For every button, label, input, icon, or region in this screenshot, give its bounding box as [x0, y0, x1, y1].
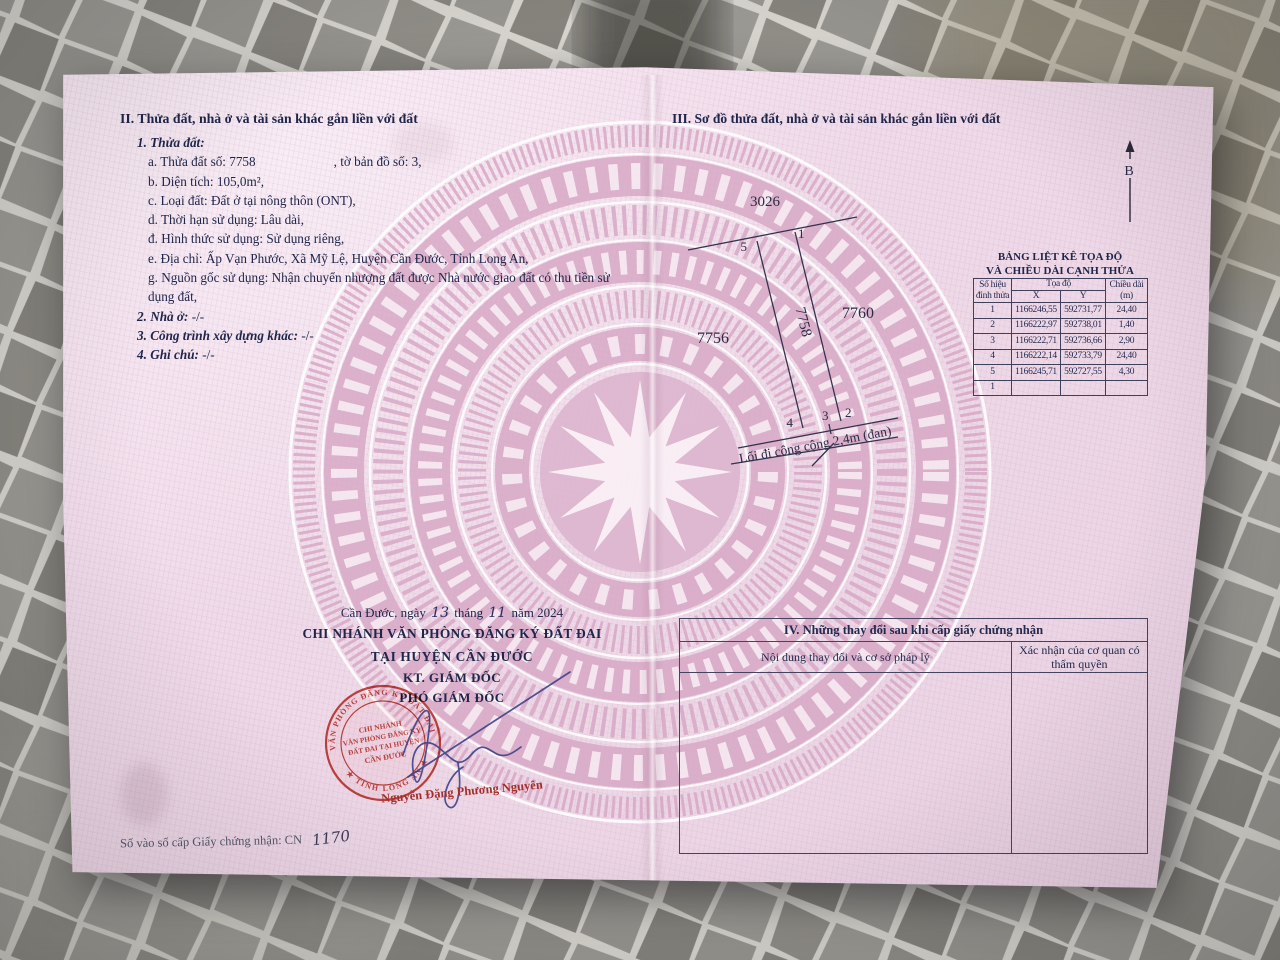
coord-table-title: BẢNG LIỆT KÊ TỌA ĐỘ VÀ CHIỀU DÀI CẠNH TH… [950, 251, 1170, 278]
certificate-content: II. Thửa đất, nhà ở và tài sản khác gắn … [63, 75, 1213, 885]
parcel-3026-label: 3026 [750, 194, 781, 210]
section3-heading: III. Sơ đồ thửa đất, nhà ở và tài sản kh… [672, 111, 1000, 127]
table-row: 1 [974, 380, 1148, 396]
section2-heading: II. Thửa đất, nhà ở và tài sản khác gắn … [120, 111, 418, 127]
table-row: 21166222,97592738,011,40 [974, 318, 1148, 334]
col-y-header: Y [1061, 291, 1106, 303]
issue-date-line: Cần Đước, ngày 13 tháng 11 năm 2024 [250, 603, 654, 623]
vertex-1-label: 1 [798, 226, 805, 241]
registry-label: Số vào sổ cấp Giấy chứng nhận: CN [120, 833, 302, 851]
section4-col-content: Nội dung thay đổi và cơ sở pháp lý [680, 642, 1012, 673]
item-cong-trinh: 3. Công trình xây dựng khác: -/- [137, 326, 717, 345]
certificate-sheet-wrapper: II. Thửa đất, nhà ở và tài sản khác gắn … [0, 0, 1280, 960]
col-x-header: X [1012, 291, 1061, 303]
col-vertex-header: Số hiệu đỉnh thửa [974, 279, 1012, 303]
section4-table: IV. Những thay đổi sau khi cấp giấy chứn… [679, 618, 1148, 854]
section4-body-left [680, 673, 1012, 854]
section4-body-right [1011, 673, 1147, 854]
road-label-pointer [812, 443, 834, 466]
registry-number-line: Số vào sổ cấp Giấy chứng nhận: CN 1170 [120, 829, 351, 853]
item-ghi-chu: 4. Ghi chú: -/- [137, 345, 717, 364]
table-row: 41166222,14592733,7924,40 [974, 349, 1148, 365]
registry-number-handwritten: 1170 [311, 827, 351, 850]
certificate-sheet: II. Thửa đất, nhà ở và tài sản khác gắn … [55, 64, 1217, 892]
item-thua-dat: 1. Thửa đất: [137, 133, 717, 152]
vertex-2-label: 2 [845, 405, 852, 420]
paper-stain [121, 763, 167, 825]
item-loai-dat: c. Loại đất: Đất ở tại nông thôn (ONT), [137, 191, 717, 210]
item-thoi-han: d. Thời hạn sử dụng: Lâu dài, [137, 210, 717, 229]
photo-of-land-certificate: II. Thửa đất, nhà ở và tài sản khác gắn … [0, 0, 1280, 960]
table-row: 51166245,71592727,554,30 [974, 365, 1148, 381]
vertex-5-label: 5 [741, 239, 748, 254]
section2-body: 1. Thửa đất: a. Thửa đất số: 7758, tờ bả… [137, 133, 717, 365]
road-label: Lối đi công cộng 2,4m (đan) [738, 423, 893, 466]
coord-table: Số hiệu đỉnh thửa Tọa độ Chiều dài (m) X… [973, 278, 1148, 396]
item-dia-chi: e. Địa chỉ: Ấp Vạn Phước, Xã Mỹ Lệ, Huyệ… [137, 249, 717, 268]
table-row: 11166246,55592731,7724,40 [974, 303, 1148, 319]
vertex-4-label: 4 [787, 415, 794, 430]
section4-col-confirm: Xác nhận của cơ quan có thẩm quyền [1011, 642, 1147, 673]
item-hinh-thuc: đ. Hình thức sử dụng: Sử dụng riêng, [137, 229, 717, 248]
north-label: B [1124, 164, 1133, 179]
parcel-7758-label: 7758 [791, 306, 814, 339]
section4-heading: IV. Những thay đổi sau khi cấp giấy chứn… [680, 619, 1148, 642]
road-lower-line [731, 437, 898, 464]
item-nha-o: 2. Nhà ở: -/- [137, 307, 717, 326]
item-nguon-goc: g. Nguồn gốc sử dụng: Nhận chuyển nhượng… [137, 268, 717, 287]
parcel-7760-label: 7760 [842, 305, 874, 322]
north-arrow-icon: B [1124, 140, 1134, 222]
road-upper-line [738, 418, 898, 448]
item-thua-dat-so: a. Thửa đất số: 7758, tờ bản đồ số: 3, [137, 152, 717, 171]
item-nguon-goc-2: dụng đất, [137, 287, 717, 306]
table-row: 31166222,71592736,662,90 [974, 334, 1148, 350]
handwritten-month: 11 [486, 605, 508, 621]
strip-right-line [795, 232, 841, 421]
strip-left-line [757, 241, 803, 428]
vertex3-tick [829, 424, 831, 434]
col-length-header: Chiều dài (m) [1106, 279, 1148, 303]
item-dien-tich: b. Diện tích: 105,0m², [137, 172, 717, 191]
col-coord-header: Tọa độ [1012, 279, 1106, 291]
office-line-1: CHI NHÁNH VĂN PHÒNG ĐĂNG KÝ ĐẤT ĐAI [250, 623, 654, 645]
signature-ink [363, 655, 623, 835]
handwritten-day: 13 [429, 605, 451, 621]
vertex-3-label: 3 [822, 408, 829, 423]
